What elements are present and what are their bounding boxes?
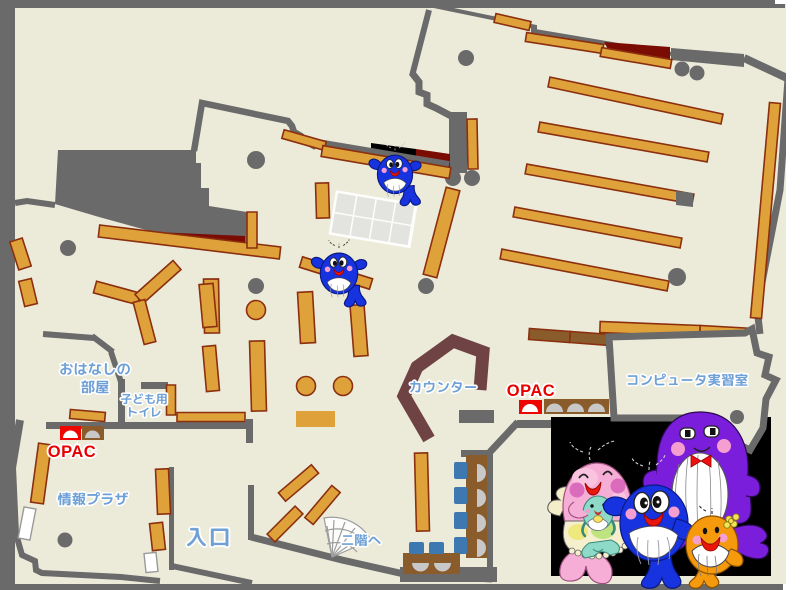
svg-text:OPAC: OPAC — [48, 443, 96, 461]
svg-text:OPAC: OPAC — [507, 382, 555, 400]
